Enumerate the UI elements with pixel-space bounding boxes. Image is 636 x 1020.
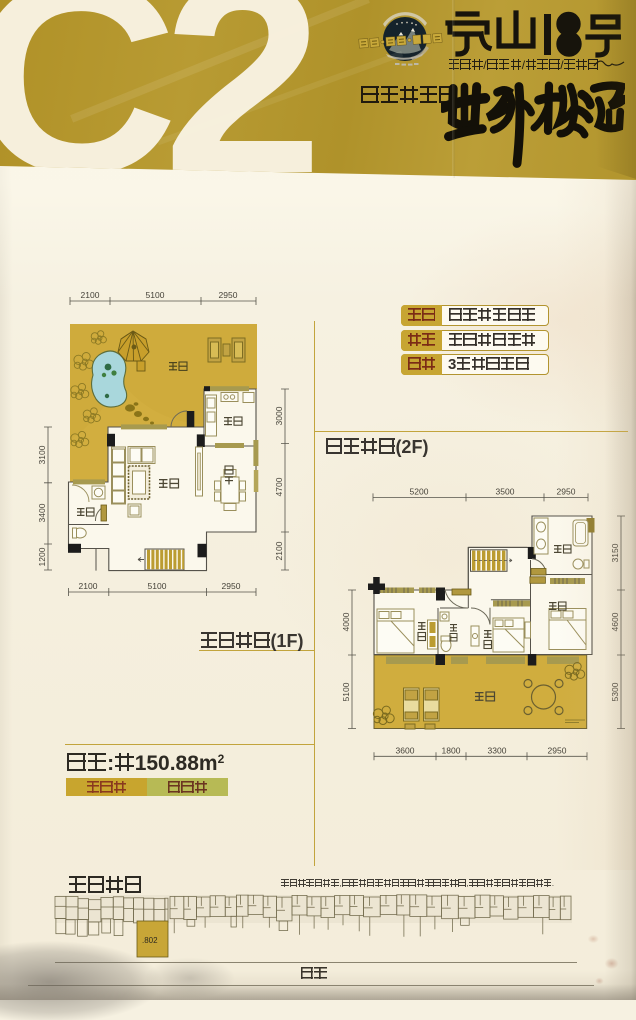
svg-text:2100: 2100 xyxy=(81,290,100,300)
svg-text:2100: 2100 xyxy=(274,541,284,560)
svg-text:4700: 4700 xyxy=(274,477,284,496)
svg-text:4000: 4000 xyxy=(341,612,351,631)
svg-text:2100: 2100 xyxy=(79,581,98,591)
svg-text:3000: 3000 xyxy=(274,406,284,425)
svg-text:5100: 5100 xyxy=(146,290,165,300)
svg-text:3300: 3300 xyxy=(488,745,507,755)
svg-text:2950: 2950 xyxy=(222,581,241,591)
svg-text:1800: 1800 xyxy=(442,745,461,755)
svg-text:5100: 5100 xyxy=(148,581,167,591)
svg-text:5200: 5200 xyxy=(410,487,429,497)
svg-text:3100: 3100 xyxy=(37,445,47,464)
svg-text:1200: 1200 xyxy=(37,547,47,566)
svg-text:5100: 5100 xyxy=(341,682,351,701)
svg-text:3500: 3500 xyxy=(496,487,515,497)
svg-text:3600: 3600 xyxy=(396,745,415,755)
svg-text:2950: 2950 xyxy=(219,290,238,300)
svg-text:3400: 3400 xyxy=(37,503,47,522)
